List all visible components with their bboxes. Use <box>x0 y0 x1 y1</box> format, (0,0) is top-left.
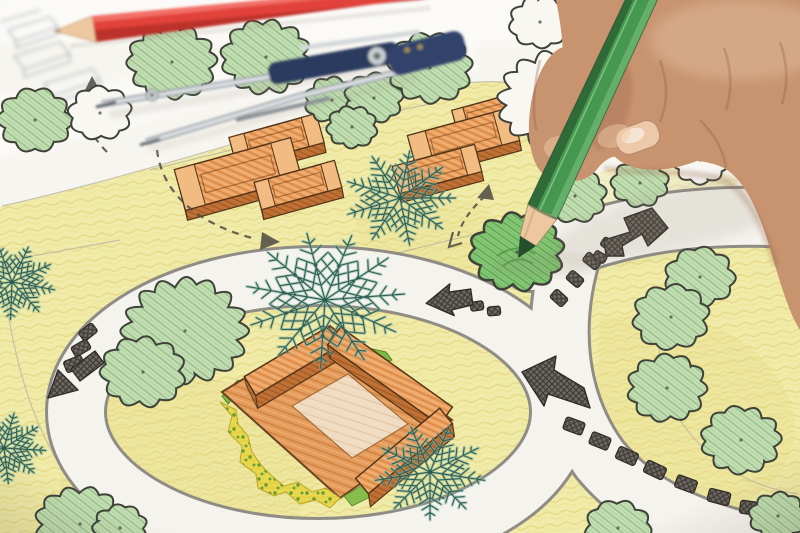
garden-plan-photo: Photograph of a designer's hand coloring… <box>0 0 800 533</box>
photo-of-landscape-plan: Photograph of a designer's hand coloring… <box>0 0 800 533</box>
photo-vignette <box>0 0 800 533</box>
